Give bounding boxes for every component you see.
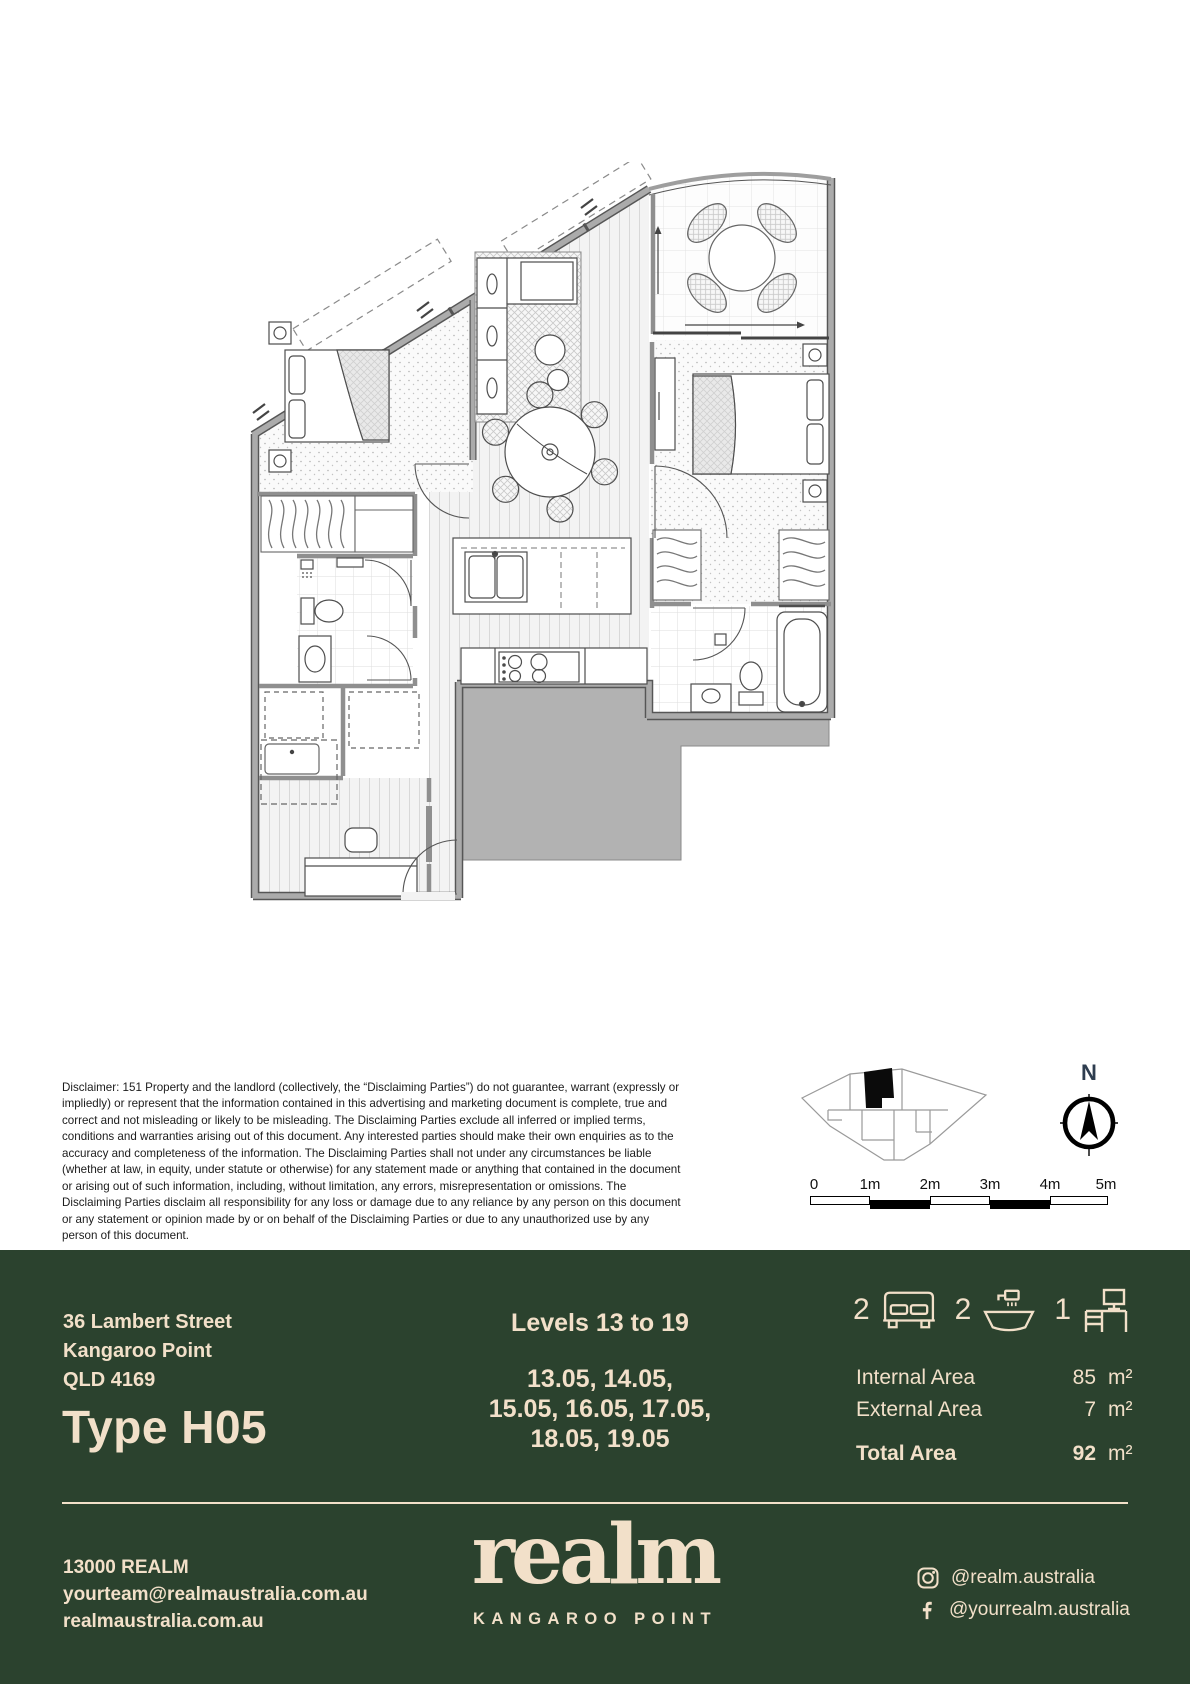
external-area-row: External Area 7 m² (856, 1394, 1132, 1426)
facebook-handle: @yourrealm.australia (949, 1599, 1130, 1621)
bath-icon (981, 1287, 1037, 1333)
levels-title: Levels 13 to 19 (430, 1308, 770, 1338)
footer-panel: 36 Lambert Street Kangaroo Point QLD 416… (0, 1250, 1190, 1684)
instagram-handle: @realm.australia (951, 1567, 1095, 1589)
robe-1 (261, 496, 413, 552)
total-area-row: Total Area 92 m² (856, 1438, 1132, 1470)
levels-block: Levels 13 to 19 13.05, 14.05, 15.05, 16.… (430, 1308, 770, 1454)
kitchen-cooktop (461, 648, 647, 684)
floor-plan-drawing (245, 162, 845, 907)
contact-phone[interactable]: 13000 REALM (63, 1554, 368, 1581)
units-line-2: 15.05, 16.05, 17.05, (430, 1394, 770, 1424)
address-line-2: Kangaroo Point (63, 1337, 232, 1366)
scale-label: 2m (920, 1176, 941, 1193)
total-area-label: Total Area (856, 1442, 1048, 1466)
bathrooms-feature: 2 (955, 1287, 1038, 1333)
external-area-unit: m² (1096, 1398, 1132, 1422)
area-table: Internal Area 85 m² External Area 7 m² T… (856, 1362, 1132, 1470)
scale-label: 5m (1096, 1176, 1117, 1193)
scale-label: 4m (1040, 1176, 1061, 1193)
scale-label: 0 (810, 1176, 818, 1193)
facebook-icon (916, 1599, 938, 1621)
unit-location-marker (864, 1068, 894, 1108)
bathrooms-count: 2 (955, 1293, 972, 1327)
facebook-row[interactable]: @yourrealm.australia (916, 1599, 1130, 1621)
internal-area-unit: m² (1096, 1366, 1132, 1390)
footer-divider (62, 1502, 1128, 1504)
internal-area-value: 85 (1048, 1366, 1096, 1390)
unit-numbers: 13.05, 14.05, 15.05, 16.05, 17.05, 18.05… (430, 1364, 770, 1454)
internal-area-row: Internal Area 85 m² (856, 1362, 1132, 1394)
compass-icon (1056, 1086, 1122, 1160)
feature-icons-row: 2 2 1 (853, 1286, 1131, 1334)
study-count: 1 (1054, 1293, 1071, 1327)
address-line-1: 36 Lambert Street (63, 1308, 232, 1337)
floor-plan (245, 162, 845, 907)
bedrooms-count: 2 (853, 1293, 870, 1327)
social-links: @realm.australia @yourrealm.australia (916, 1566, 1130, 1630)
bedrooms-feature: 2 (853, 1288, 938, 1332)
contact-block: 13000 REALM yourteam@realmaustralia.com.… (63, 1554, 368, 1635)
internal-area-label: Internal Area (856, 1366, 1048, 1390)
bed-icon (880, 1288, 938, 1332)
building-locator (798, 1062, 990, 1166)
kitchen-island (453, 538, 631, 614)
scale-label: 1m (860, 1176, 881, 1193)
contact-email[interactable]: yourteam@realmaustralia.com.au (63, 1581, 368, 1608)
study-desk-icon (1081, 1286, 1131, 1334)
floorplan-page: Disclaimer: 151 Property and the landlor… (0, 0, 1190, 1684)
north-compass: N (1056, 1062, 1122, 1166)
brand-location: KANGAROO POINT (443, 1610, 747, 1629)
disclaimer-text: Disclaimer: 151 Property and the landlor… (62, 1080, 686, 1245)
contact-website[interactable]: realmaustralia.com.au (63, 1608, 368, 1635)
address-line-3: QLD 4169 (63, 1366, 232, 1395)
instagram-row[interactable]: @realm.australia (916, 1566, 1130, 1590)
instagram-icon (916, 1566, 940, 1590)
property-address: 36 Lambert Street Kangaroo Point QLD 416… (63, 1308, 232, 1395)
external-area-value: 7 (1048, 1398, 1096, 1422)
scale-bar: 0 1m 2m 3m 4m 5m (810, 1176, 1110, 1216)
total-area-unit: m² (1096, 1442, 1132, 1466)
north-label: N (1056, 1062, 1122, 1084)
study-feature: 1 (1054, 1286, 1131, 1334)
units-line-1: 13.05, 14.05, (430, 1364, 770, 1394)
scale-bar-segments (810, 1196, 1110, 1212)
brand-block: realm KANGAROO POINT (443, 1514, 747, 1629)
scale-label: 3m (980, 1176, 1001, 1193)
realm-logo: realm (443, 1514, 747, 1596)
scale-labels: 0 1m 2m 3m 4m 5m (810, 1176, 1110, 1196)
total-area-value: 92 (1048, 1442, 1096, 1466)
units-line-3: 18.05, 19.05 (430, 1424, 770, 1454)
apartment-type-title: Type H05 (62, 1400, 267, 1454)
external-area-label: External Area (856, 1398, 1048, 1422)
